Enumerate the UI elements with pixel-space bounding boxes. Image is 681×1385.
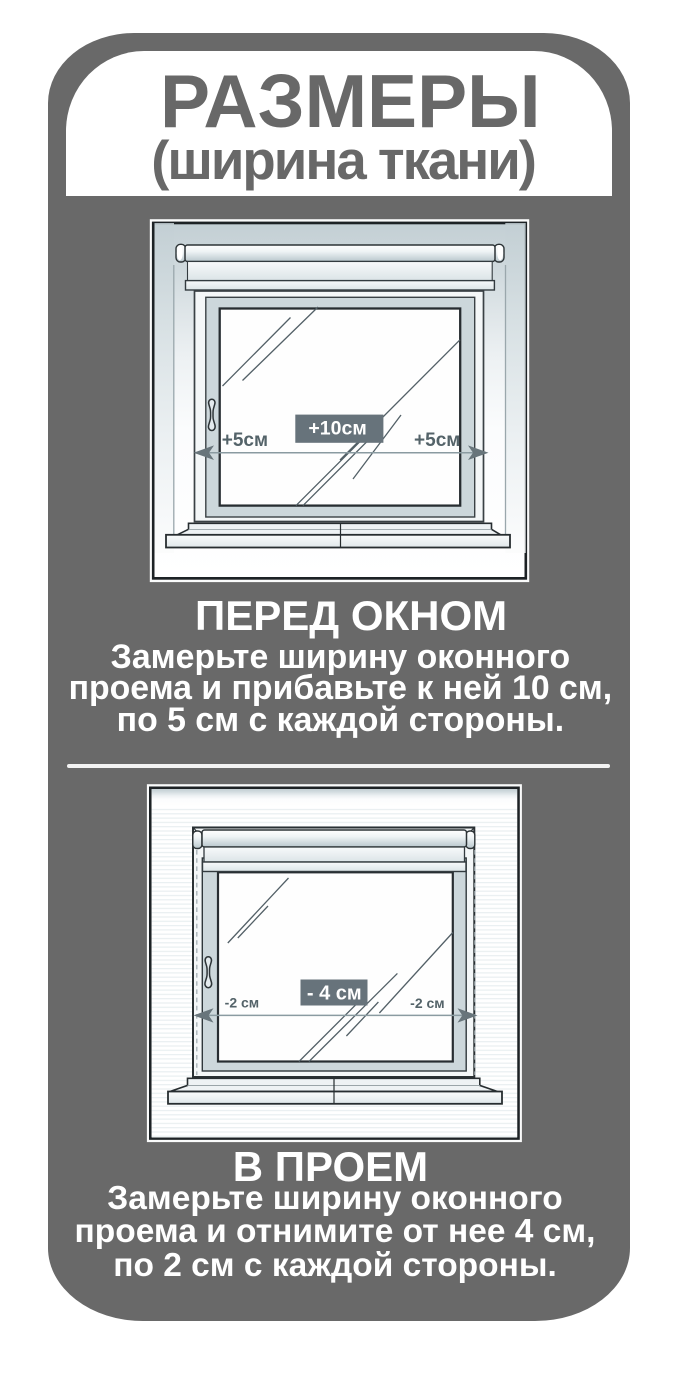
- svg-text:-2 см: -2 см: [225, 995, 259, 1011]
- svg-text:- 4 см: - 4 см: [307, 982, 362, 1004]
- svg-text:-2 см: -2 см: [410, 995, 444, 1011]
- svg-text:+5см: +5см: [222, 430, 268, 451]
- svg-text:+5см: +5см: [414, 430, 460, 451]
- svg-text:+10см: +10см: [308, 418, 366, 440]
